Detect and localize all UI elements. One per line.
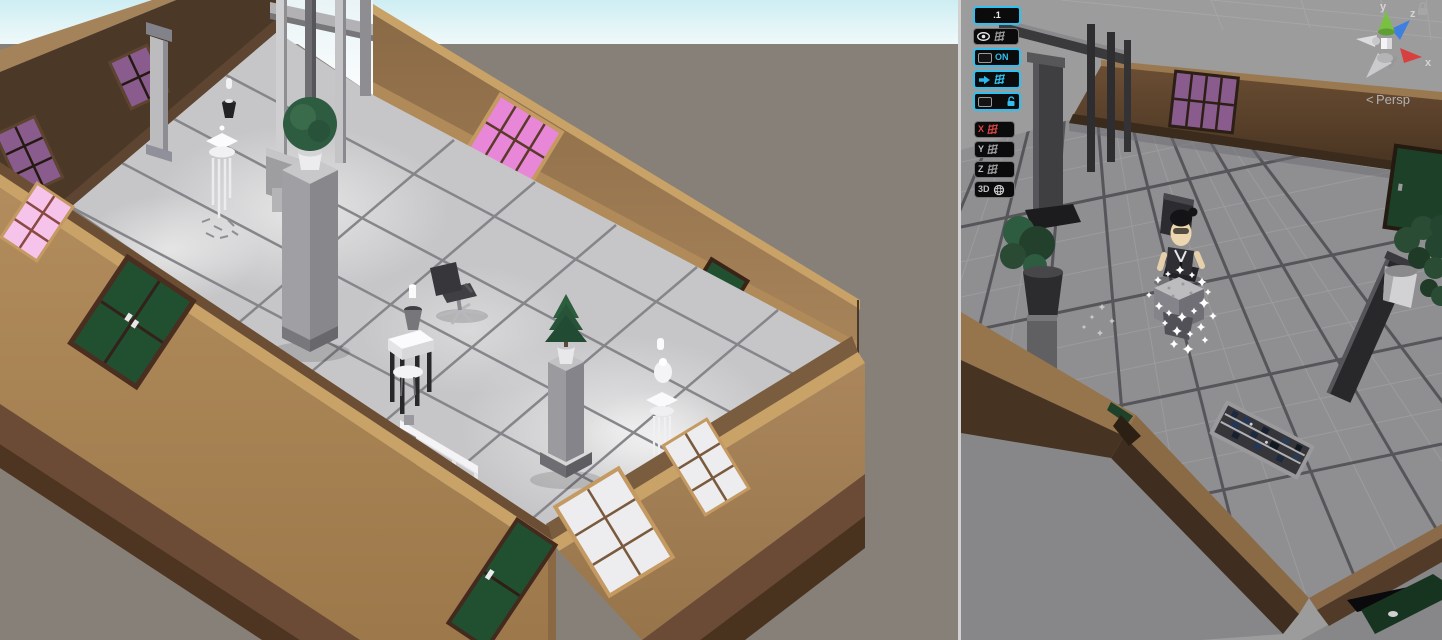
gizmo-y-label: y xyxy=(1380,1,1387,13)
gizmo-y-axis[interactable] xyxy=(1378,11,1395,36)
axis-y-button[interactable]: Y xyxy=(974,141,1015,158)
grid-icon xyxy=(987,124,999,135)
projection-chevron: < xyxy=(1366,92,1374,107)
gizmo-x-axis[interactable] xyxy=(1400,48,1422,63)
progrids-toolbar: .1 ON X xyxy=(973,6,1021,198)
snap-enabled-label: ON xyxy=(995,53,1009,62)
padlock-open-icon xyxy=(1006,96,1016,107)
gizmo-z-label: z xyxy=(1410,8,1416,20)
grid-icon xyxy=(994,74,1006,85)
grid-visibility-button[interactable] xyxy=(973,28,1019,45)
axis-x-button[interactable]: X xyxy=(974,121,1015,138)
checkbox-icon xyxy=(978,97,992,107)
gizmo-cube-shade xyxy=(1387,38,1392,49)
grid-icon xyxy=(987,144,999,155)
angle-snap-button[interactable] xyxy=(973,92,1021,111)
grid-3d-button[interactable]: 3D xyxy=(974,181,1015,198)
orientation-gizmo: y z x < Persp xyxy=(1346,0,1438,118)
push-to-grid-button[interactable] xyxy=(973,70,1021,89)
grid-icon xyxy=(987,164,999,175)
eye-icon xyxy=(977,32,991,41)
grid-icon xyxy=(994,31,1006,42)
axis-z-button[interactable]: Z xyxy=(974,161,1015,178)
snap-enabled-button[interactable]: ON xyxy=(973,48,1021,67)
grid-3d-label: 3D xyxy=(978,185,990,194)
arrow-right-icon xyxy=(978,75,991,85)
checkbox-icon xyxy=(978,53,992,63)
gizmo-x-label: x xyxy=(1425,57,1432,69)
projection-label: Persp xyxy=(1376,92,1410,107)
sphere-grid-icon xyxy=(993,184,1005,196)
axis-x-label: X xyxy=(978,125,984,134)
axis-z-label: Z xyxy=(978,165,984,174)
unity-editor-viewports: .1 ON X xyxy=(0,0,1442,640)
snap-value-label: .1 xyxy=(993,11,1001,20)
projection-toggle[interactable]: < Persp xyxy=(1366,92,1410,107)
axis-y-label: Y xyxy=(978,145,984,154)
scene-view[interactable]: .1 ON X xyxy=(961,0,1442,640)
snap-value-button[interactable]: .1 xyxy=(973,6,1021,25)
padlock-icon[interactable] xyxy=(1418,3,1427,15)
game-view[interactable] xyxy=(0,0,958,640)
game-view-canvas xyxy=(0,0,958,640)
scene-purple-window[interactable] xyxy=(1168,70,1240,135)
